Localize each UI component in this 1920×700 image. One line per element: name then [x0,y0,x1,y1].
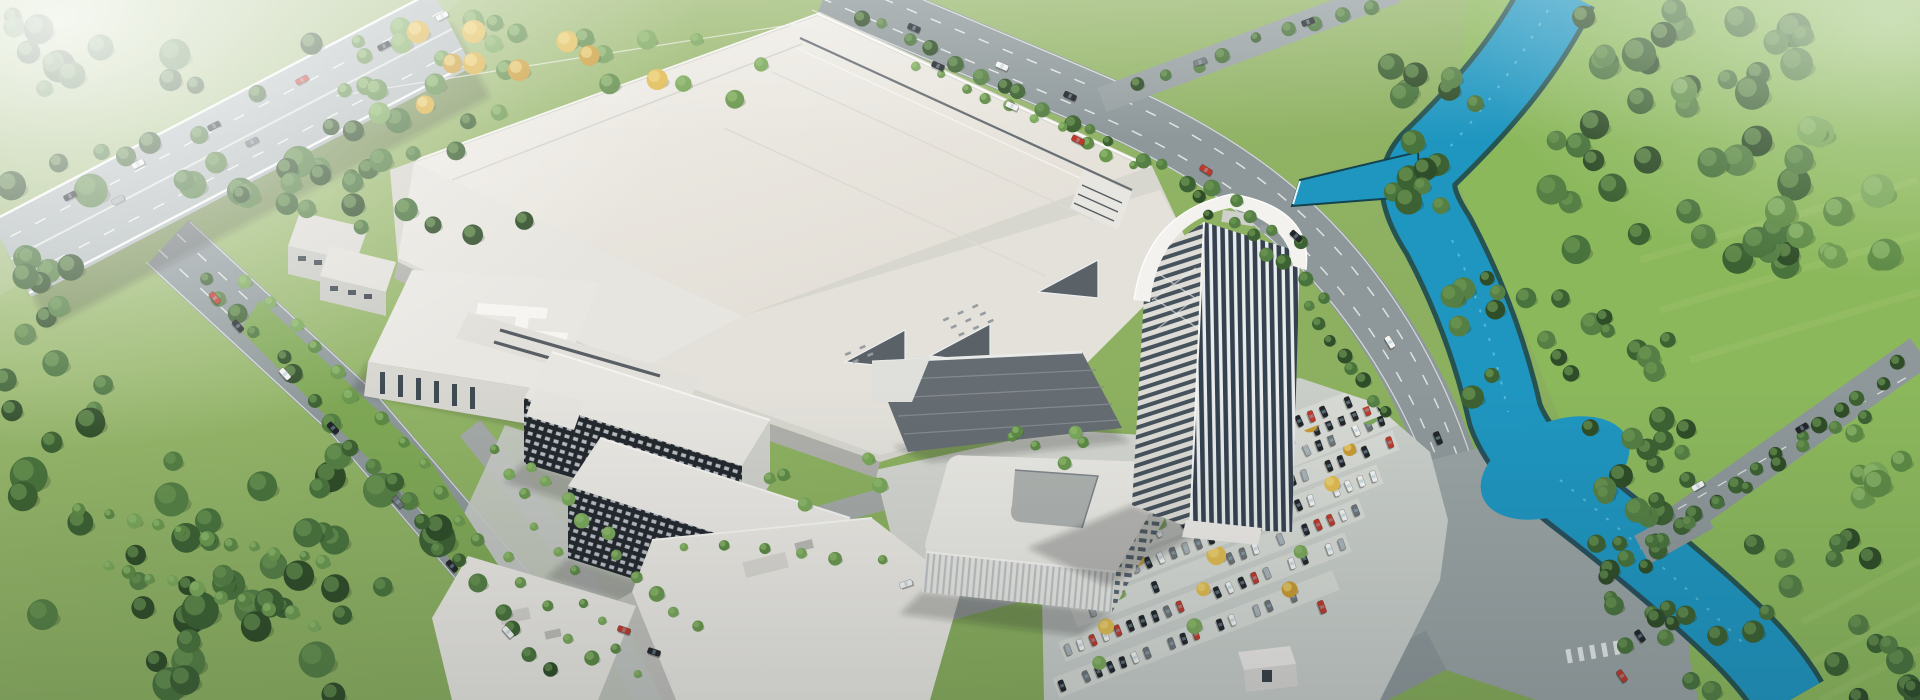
bottom-vignette [0,0,1920,700]
atmosphere-layer [0,0,1920,700]
aerial-render-image [0,0,1920,700]
aerial-campus-svg [0,0,1920,700]
